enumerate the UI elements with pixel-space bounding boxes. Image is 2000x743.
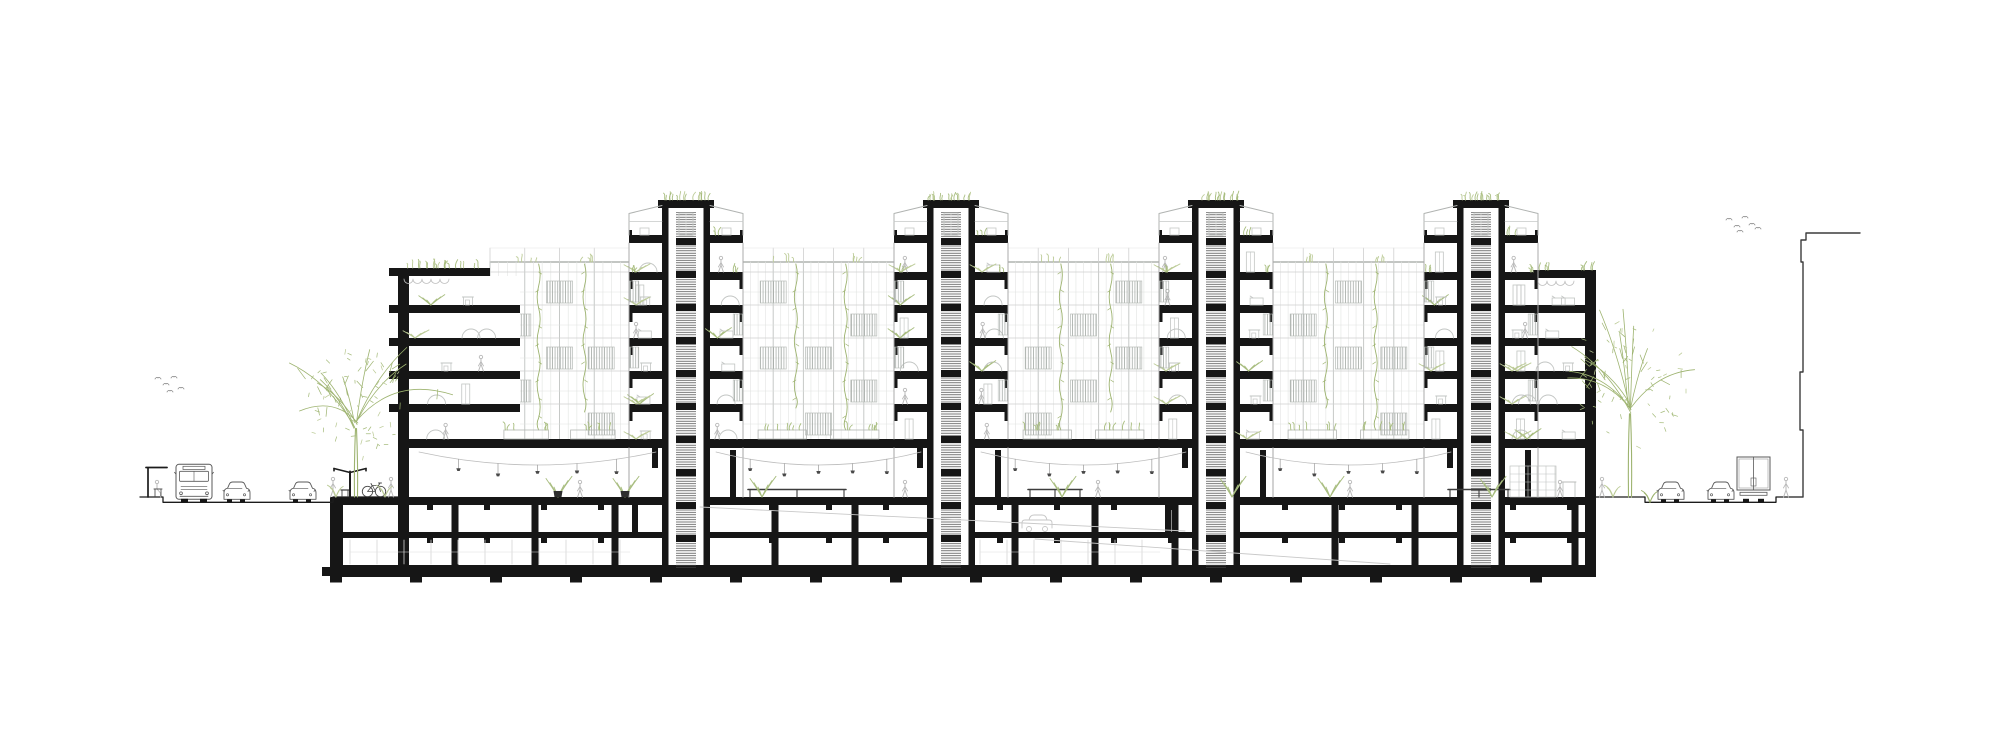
architectural-section-page — [0, 0, 2000, 743]
bus — [175, 464, 214, 502]
car — [289, 482, 316, 502]
building-section-drawing — [0, 0, 2000, 743]
pedestrian — [1599, 477, 1604, 497]
bus-stop-shelter — [146, 468, 167, 498]
neighbor-building-outline — [1800, 233, 1860, 497]
shrub — [1604, 485, 1620, 497]
birds-left — [155, 376, 184, 392]
car — [1707, 482, 1734, 502]
truck — [1737, 457, 1770, 502]
plant-pot — [621, 491, 630, 497]
street-lamp — [334, 469, 366, 498]
bench — [341, 490, 349, 496]
stair-shaft — [941, 212, 961, 575]
street-right — [1599, 457, 1788, 502]
car — [223, 482, 250, 502]
plant-pot — [554, 491, 563, 497]
car — [1657, 482, 1684, 502]
stair-shaft — [676, 212, 696, 575]
birds-right — [1726, 216, 1761, 232]
stair-shaft — [1471, 212, 1491, 575]
shrub — [376, 485, 392, 497]
stair-shaft — [1206, 212, 1226, 575]
pedestrian — [1783, 477, 1788, 497]
